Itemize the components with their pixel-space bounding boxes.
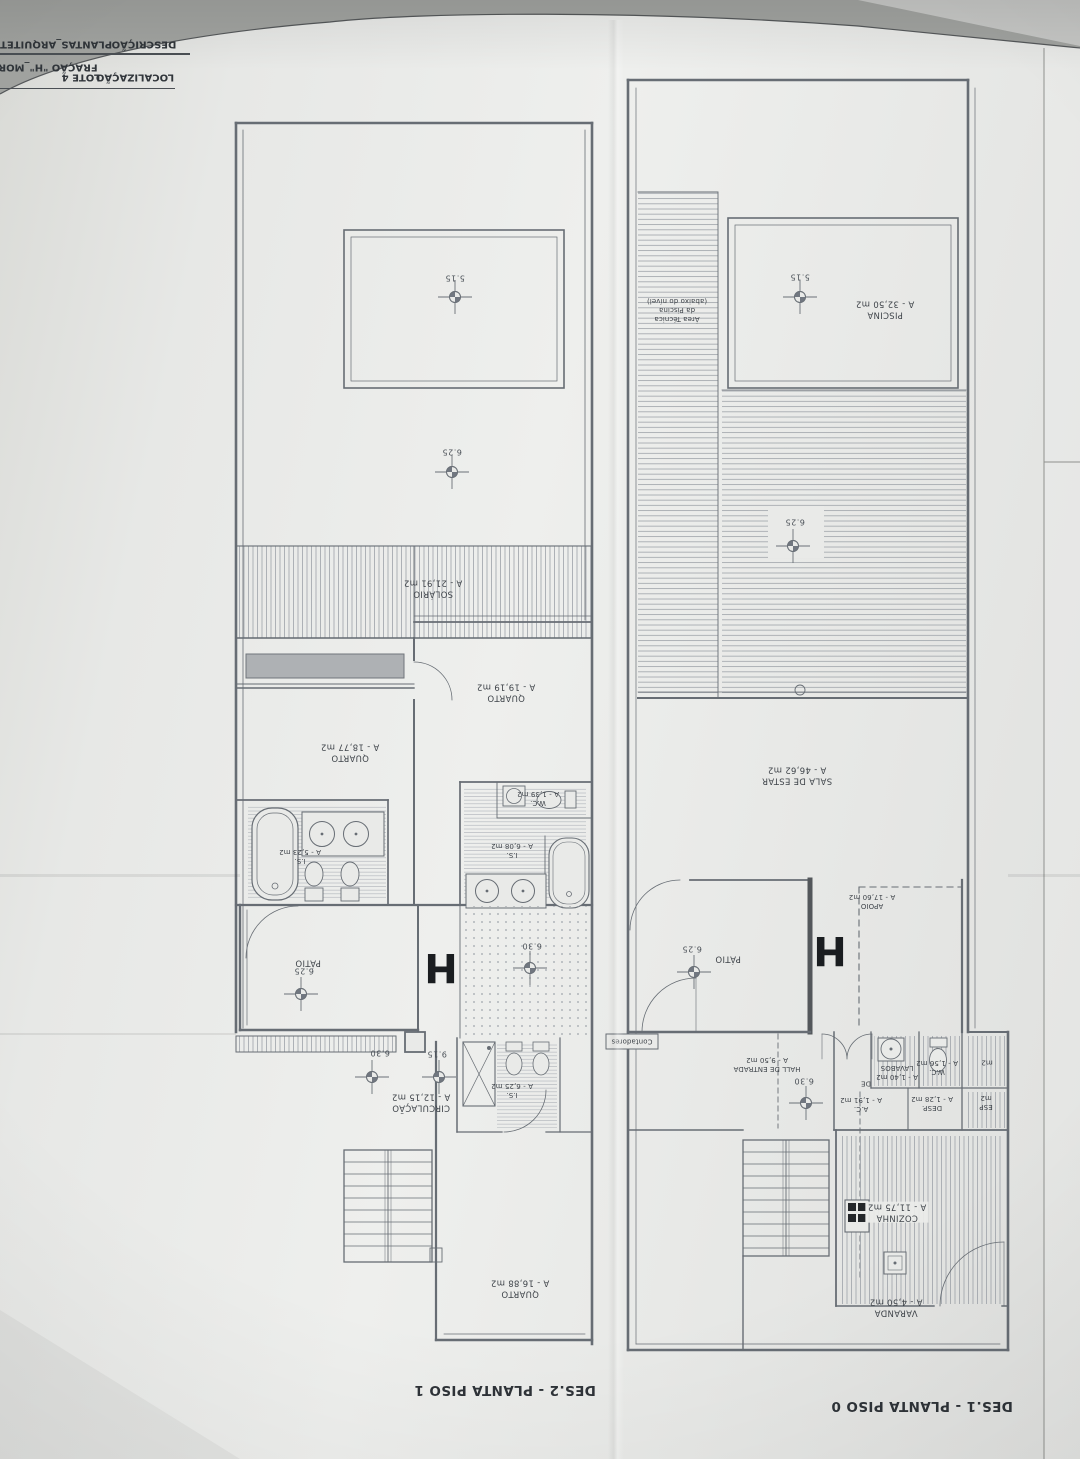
room-label-is-3: I.S. A - 6,25 m2	[491, 1081, 533, 1099]
room-name: QUARTO	[331, 752, 369, 763]
room-name: LAVABOS	[881, 1063, 914, 1072]
room-label-circulacao: CIRCULAÇÃO A - 12,15 m2	[392, 1091, 451, 1112]
room-label-piscina: PISCINA A - 32,50 m2	[856, 298, 915, 319]
room-label-patio-piso0: PÁTIO	[715, 953, 741, 964]
room-label-area-tecnica: Área Técnica da Piscina (abaixo do nível…	[647, 297, 707, 323]
room-name: PISCINA	[867, 309, 903, 320]
room-area: A - 4,50 m2	[870, 1296, 923, 1307]
fraction-letter-piso1: H	[424, 944, 457, 990]
room-label-varanda: VARANDA A - 4,50 m2	[870, 1296, 923, 1317]
room-area: A - 12,15 m2	[392, 1091, 451, 1102]
room-name: Contadores	[611, 1037, 652, 1046]
room-name: A.C.	[854, 1104, 868, 1113]
room-name: VARANDA	[874, 1307, 917, 1318]
label-line: (abaixo do nível)	[647, 297, 707, 306]
title-block-localizacao-value: LOTE 4	[62, 72, 101, 83]
room-label-is-2: I.S. A - 6,08 m2	[491, 841, 533, 859]
room-name: I.S.	[506, 850, 517, 859]
room-label-edge-1: m2	[981, 1058, 992, 1067]
room-area: A - 17,60 m2	[849, 892, 896, 901]
room-area: A - 6,25 m2	[491, 1081, 533, 1090]
room-label-apoio: APOIO A - 17,60 m2	[849, 892, 896, 910]
room-name: DE	[861, 1079, 871, 1088]
title-block-localizacao-label: LOCALIZAÇÃO	[96, 72, 174, 83]
label-contadores: Contadores	[611, 1037, 652, 1046]
caption-planta-piso-1: DES.2 - PLANTA PISO 1	[414, 1382, 596, 1398]
room-area: A - 1,91 m2	[840, 1095, 882, 1104]
floorplan-linework	[0, 0, 1080, 1459]
room-area: A - 46,62 m2	[768, 764, 827, 775]
room-area: A - 1,40 m2	[876, 1072, 918, 1081]
caption-planta-piso-0: DES.1 - PLANTA PISO 0	[831, 1398, 1013, 1414]
photographed-floor-plan-sheet: DESCRIÇÃO PLANTAS_ARQUITETU LOCALIZAÇÃO …	[0, 0, 1080, 1459]
room-name: ESP	[979, 1102, 992, 1111]
room-label-lavabos: A - 1,40 m2 LAVABOS	[876, 1063, 918, 1081]
level-value: 6.30	[522, 942, 542, 951]
room-area: A - 1,39 m2	[517, 789, 559, 798]
label-de: DE	[861, 1079, 871, 1088]
room-area: A - 1,56 m2	[916, 1058, 958, 1067]
room-label-wc-piso1: W.C. A - 1,39 m2	[517, 789, 559, 807]
title-block-descricao-label: DESCRIÇÃO	[112, 39, 177, 50]
room-area: A - 32,50 m2	[856, 298, 915, 309]
room-label-solario: SOLÁRIO A - 21,91 m2	[404, 577, 463, 598]
room-area: A - 21,91 m2	[404, 577, 463, 588]
room-area: A - 6,08 m2	[491, 841, 533, 850]
room-name: DESP.	[922, 1103, 942, 1112]
room-label-cozinha: COZINHA A - 11,75 m2	[866, 1201, 929, 1222]
fraction-letter-piso0: H	[813, 927, 846, 973]
room-area: A - 16,88 m2	[491, 1277, 550, 1288]
room-label-quarto-2: QUARTO A - 18,77 m2	[321, 741, 380, 762]
room-area: A - 19,19 m2	[477, 681, 536, 692]
room-area: A - 1,28 m2	[911, 1094, 953, 1103]
level-value: 6.30	[794, 1077, 814, 1086]
room-area: A - 18,77 m2	[321, 741, 380, 752]
level-value: 6.25	[682, 945, 702, 954]
room-name: QUARTO	[501, 1288, 539, 1299]
label-line: da Piscina	[659, 306, 695, 315]
level-value: 6.25	[785, 518, 805, 527]
room-area: A - 9,50 m2	[746, 1055, 788, 1064]
room-label-quarto-1: QUARTO A - 19,19 m2	[477, 681, 536, 702]
level-value: 6.30	[370, 1049, 390, 1058]
room-area: m2	[981, 1058, 992, 1067]
room-name: QUARTO	[487, 692, 525, 703]
label-line: Área Técnica	[654, 314, 699, 323]
title-block-divider	[0, 53, 190, 55]
title-block-descricao-value: PLANTAS_ARQUITETU	[0, 39, 112, 50]
room-label-desp: DESP. A - 1,28 m2	[911, 1094, 953, 1112]
level-value: 6.25	[294, 967, 314, 976]
room-label-edge-2: ESP m2	[979, 1093, 992, 1111]
room-area: A - 11,75 m2	[868, 1201, 927, 1212]
room-label-wc-piso0: W.C. A - 1,56 m2	[916, 1058, 958, 1076]
level-value: 5.15	[445, 274, 465, 283]
room-name: CIRCULAÇÃO	[392, 1102, 450, 1113]
room-label-hall-de-entrada: HALL DE ENTRADA A - 9,50 m2	[734, 1055, 801, 1073]
room-name: HALL DE ENTRADA	[734, 1064, 801, 1073]
room-name: SALA DE ESTAR	[762, 775, 832, 786]
level-value: 6.25	[442, 448, 462, 457]
room-name: I.S.	[506, 1090, 517, 1099]
room-label-ac: A.C. A - 1,91 m2	[840, 1095, 882, 1113]
room-name: APOIO	[861, 901, 884, 910]
room-name: I.S.	[294, 856, 305, 865]
level-value: 5.15	[790, 273, 810, 282]
room-name: COZINHA	[876, 1212, 918, 1223]
title-block-divider-2	[0, 88, 175, 89]
title-block-fracao-value: FRAÇÃO "H"_MORAD	[0, 62, 98, 73]
room-area: A - 5,23 m2	[279, 847, 321, 856]
room-name: SOLÁRIO	[413, 588, 453, 599]
room-area: m2	[980, 1093, 991, 1102]
level-value: 9.15	[427, 1050, 447, 1059]
room-label-is-1: I.S. A - 5,23 m2	[279, 847, 321, 865]
room-label-quarto-3: QUARTO A - 16,88 m2	[491, 1277, 550, 1298]
room-name: W.C.	[530, 798, 546, 807]
room-name: W.C.	[929, 1067, 945, 1076]
room-label-sala-de-estar: SALA DE ESTAR A - 46,62 m2	[762, 764, 832, 785]
room-name: PÁTIO	[715, 953, 741, 964]
